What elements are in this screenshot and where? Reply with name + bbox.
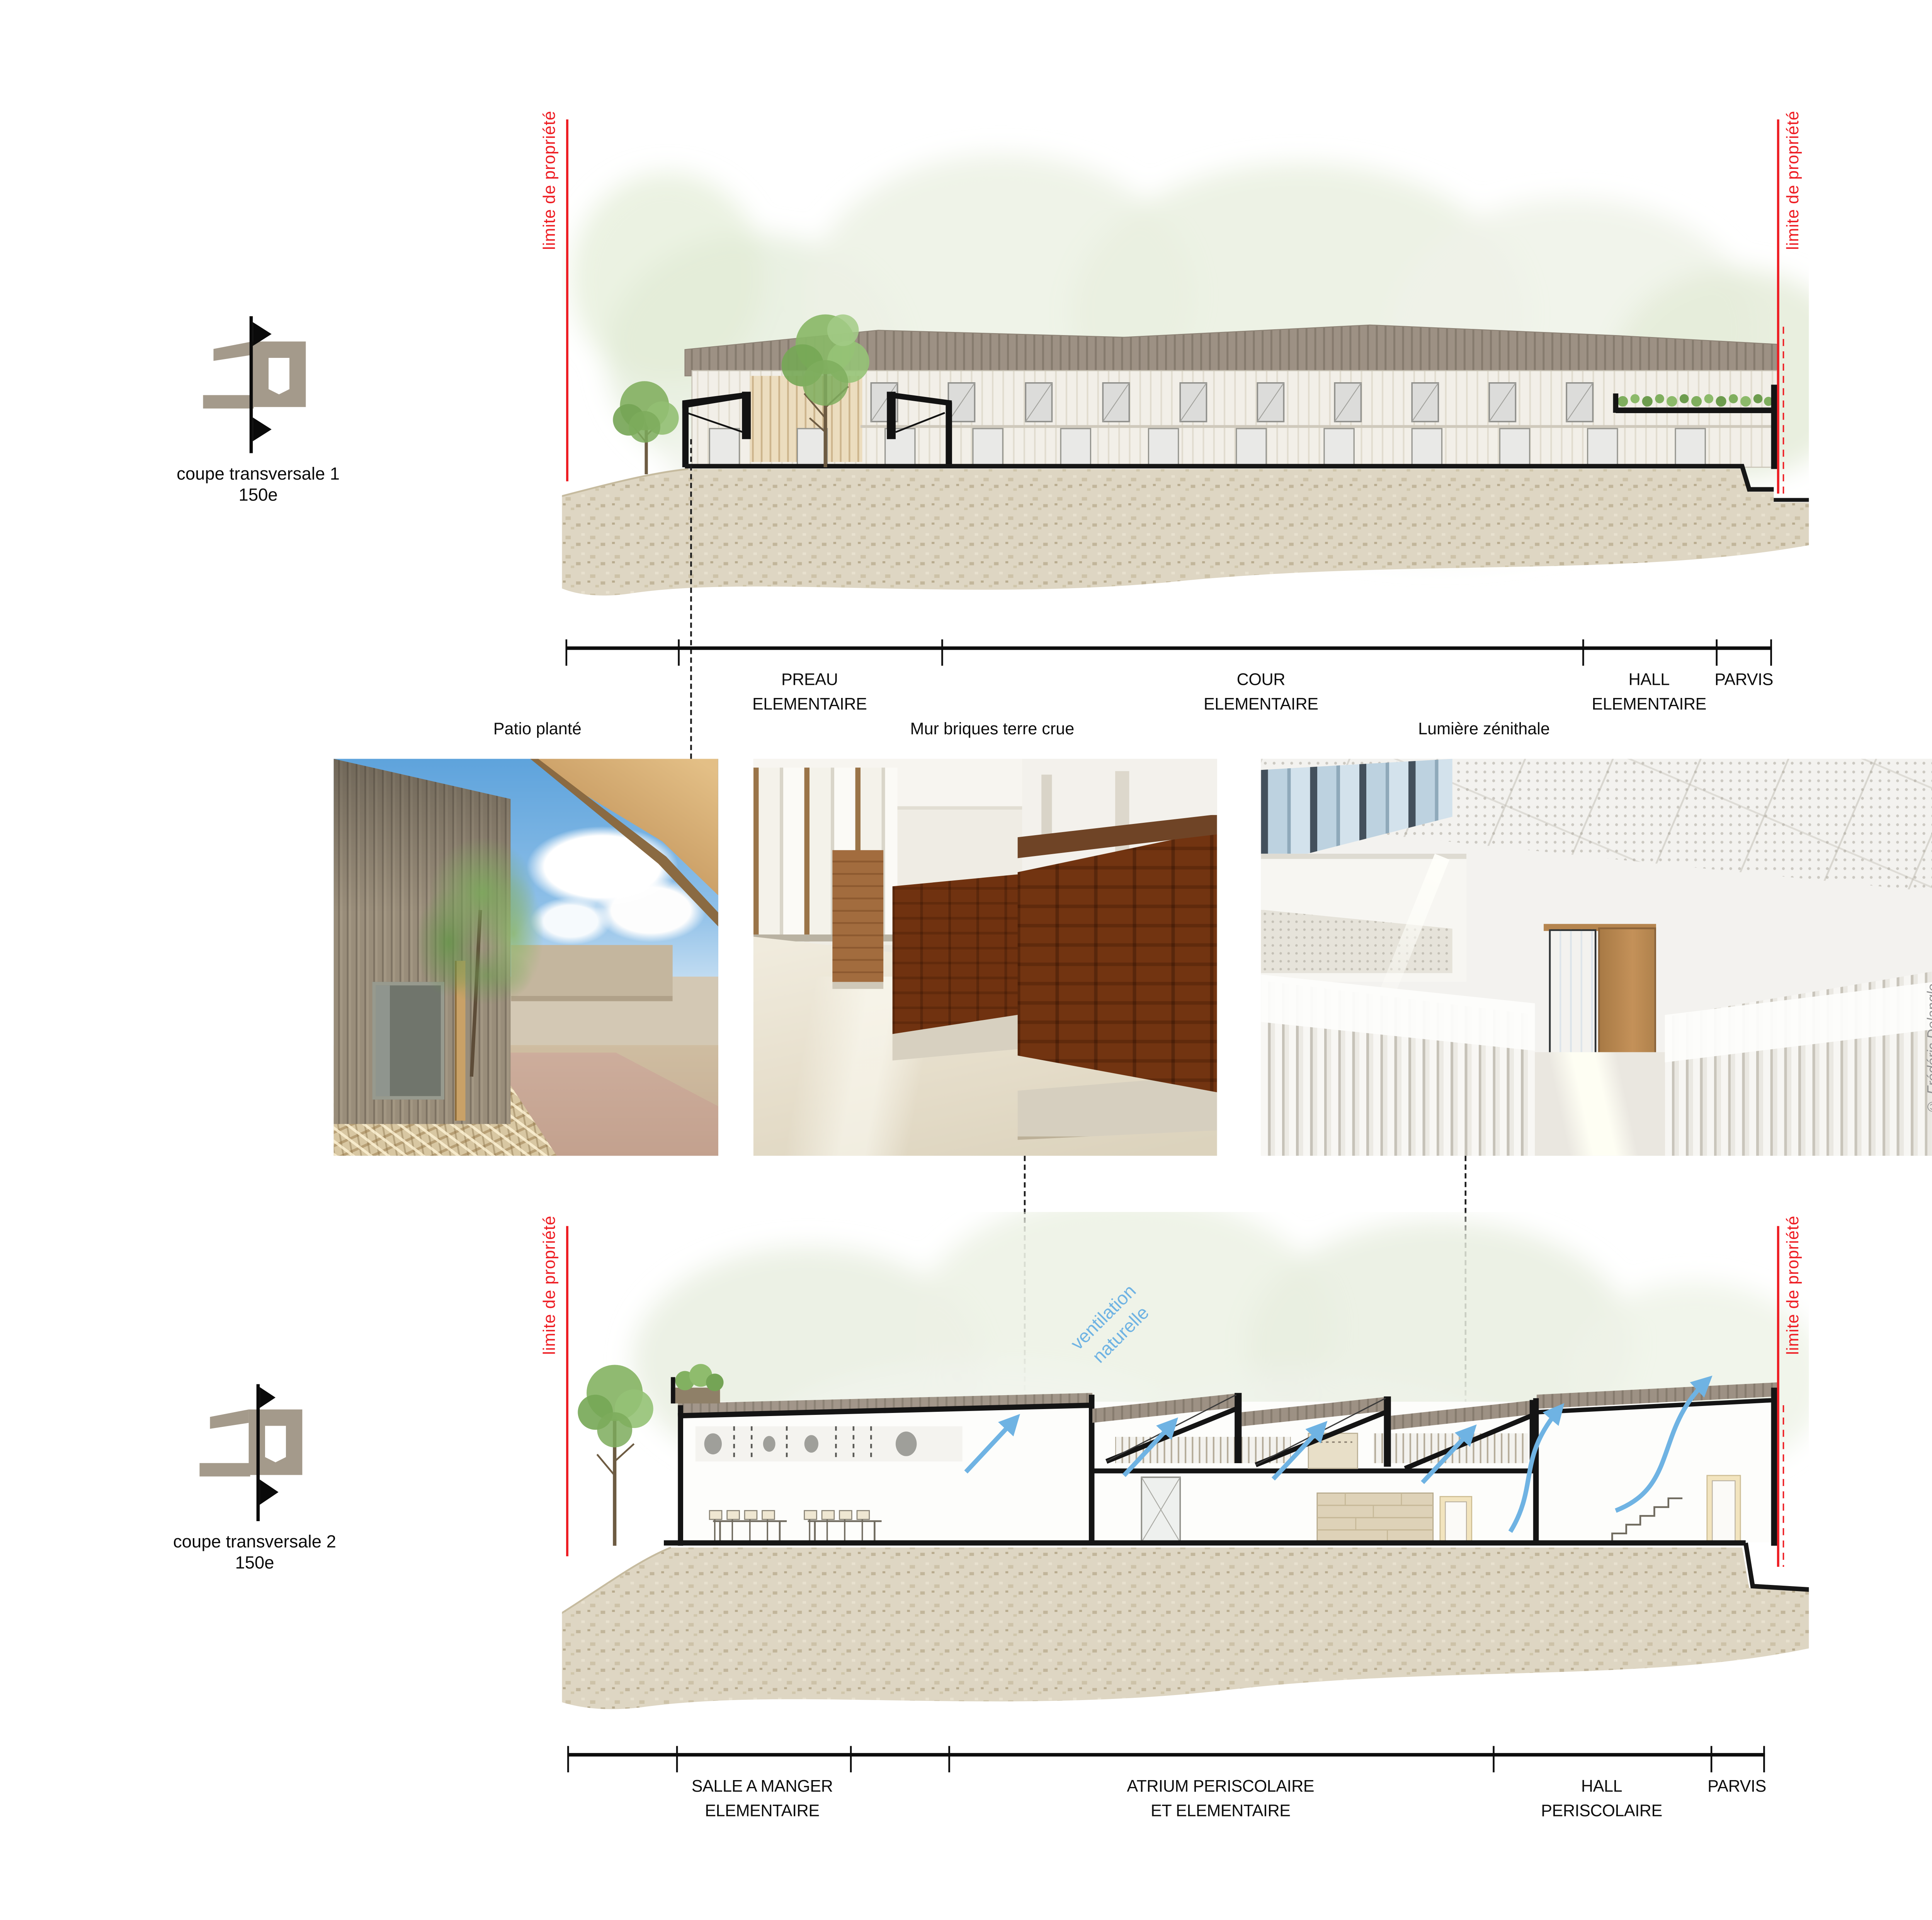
keyplan-icon-1 bbox=[183, 316, 334, 453]
dimension-label: SALLE A MANGER ELEMENTAIRE bbox=[692, 1776, 833, 1826]
brick-wall-foreground bbox=[1018, 830, 1217, 1092]
photo-credit: © Frédéric Delangle bbox=[1925, 984, 1932, 1114]
brick-partition bbox=[1317, 1493, 1433, 1542]
floor bbox=[1521, 1053, 1672, 1156]
property-limit-label: limite de propriété bbox=[1784, 111, 1804, 250]
section-drawing-coupe-2 bbox=[562, 1212, 1809, 1757]
tree bbox=[578, 1365, 653, 1546]
dimension-label: ATRIUM PERISCOLAIRE ET ELEMENTAIRE bbox=[1127, 1776, 1314, 1826]
dimension-line-coupe-2: SALLE A MANGER ELEMENTAIRE ATRIUM PERISC… bbox=[567, 1741, 1765, 1821]
dimension-tick bbox=[1770, 639, 1772, 666]
dimension-line bbox=[565, 647, 1772, 649]
property-limit-label: limite de propriété bbox=[541, 111, 560, 250]
tree-foliage bbox=[403, 814, 557, 1021]
photo-caption: Lumière zénithale bbox=[1418, 720, 1550, 739]
dimension-line-coupe-1: PREAU ELEMENTAIRE COUR ELEMENTAIRE HALL … bbox=[565, 634, 1772, 715]
dimension-tick bbox=[1711, 1746, 1713, 1772]
terrain bbox=[562, 1547, 1809, 1709]
dimension-tick bbox=[567, 1746, 570, 1772]
photo-patio-plante bbox=[334, 759, 718, 1156]
keyplan-coupe-1: coupe transversale 1 150e bbox=[104, 316, 413, 506]
keyplan-icon-2 bbox=[179, 1384, 330, 1521]
dimension-label: HALL ELEMENTAIRE bbox=[1592, 669, 1706, 720]
dimension-tick bbox=[1582, 639, 1585, 666]
dimension-tick bbox=[565, 639, 568, 666]
wood-door bbox=[1598, 928, 1656, 1068]
dimension-label: PARVIS bbox=[1714, 669, 1773, 694]
photo-caption: Mur briques terre crue bbox=[910, 720, 1075, 739]
dimension-label: COUR ELEMENTAIRE bbox=[1204, 669, 1318, 720]
brick-wall-far bbox=[832, 850, 883, 981]
dimension-line bbox=[567, 1753, 1765, 1756]
keyplan-1-scale: 150e bbox=[104, 487, 413, 506]
terrain bbox=[562, 469, 1809, 596]
photo-mur-briques bbox=[753, 759, 1217, 1156]
dimension-label: PARVIS bbox=[1708, 1776, 1766, 1801]
section-drawing-coupe-1 bbox=[562, 67, 1809, 647]
property-limit-label: limite de propriété bbox=[541, 1215, 560, 1355]
dimension-tick bbox=[948, 1746, 951, 1772]
property-limit-label: limite de propriété bbox=[1784, 1215, 1804, 1355]
glazed-opening bbox=[1549, 929, 1597, 1060]
dimension-tick bbox=[850, 1746, 852, 1772]
keyplan-1-label: coupe transversale 1 bbox=[104, 464, 413, 487]
dimension-tick bbox=[1716, 639, 1718, 666]
dimension-tick bbox=[676, 1746, 679, 1772]
dimension-tick bbox=[1493, 1746, 1495, 1772]
photo-lumiere-zenithale bbox=[1261, 759, 1932, 1156]
dimension-tick bbox=[941, 639, 944, 666]
keyplan-2-scale: 150e bbox=[100, 1554, 409, 1574]
photo-caption: Patio planté bbox=[493, 720, 582, 739]
dimension-label: PREAU ELEMENTAIRE bbox=[752, 669, 867, 720]
dimension-label: HALL PERISCOLAIRE bbox=[1541, 1776, 1662, 1826]
dimension-tick bbox=[1762, 1746, 1765, 1772]
keyplan-coupe-2: coupe transversale 2 150e bbox=[100, 1384, 409, 1574]
presentation-board: coupe transversale 1 150e coupe transver… bbox=[0, 0, 1932, 1920]
keyplan-2-label: coupe transversale 2 bbox=[100, 1532, 409, 1554]
dimension-tick bbox=[678, 639, 680, 666]
